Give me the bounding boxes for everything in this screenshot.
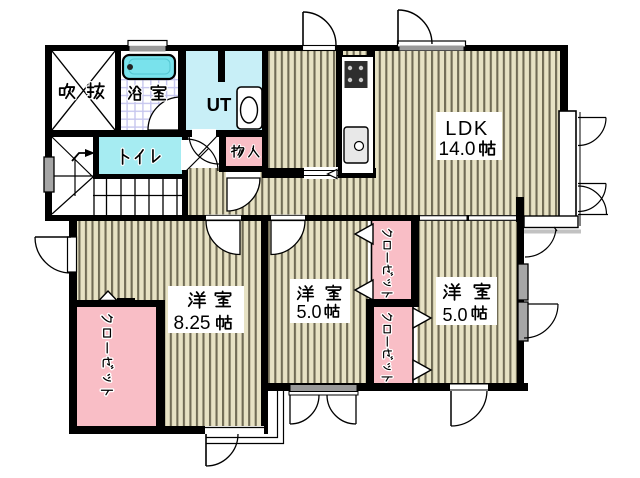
svg-text:14.0: 14.0: [439, 139, 476, 160]
svg-text:5.0: 5.0: [442, 305, 467, 325]
svg-text:UT: UT: [207, 94, 232, 115]
svg-text:5.0: 5.0: [296, 302, 321, 322]
svg-text:LDK: LDK: [445, 118, 488, 140]
svg-text:8.25: 8.25: [174, 313, 211, 334]
